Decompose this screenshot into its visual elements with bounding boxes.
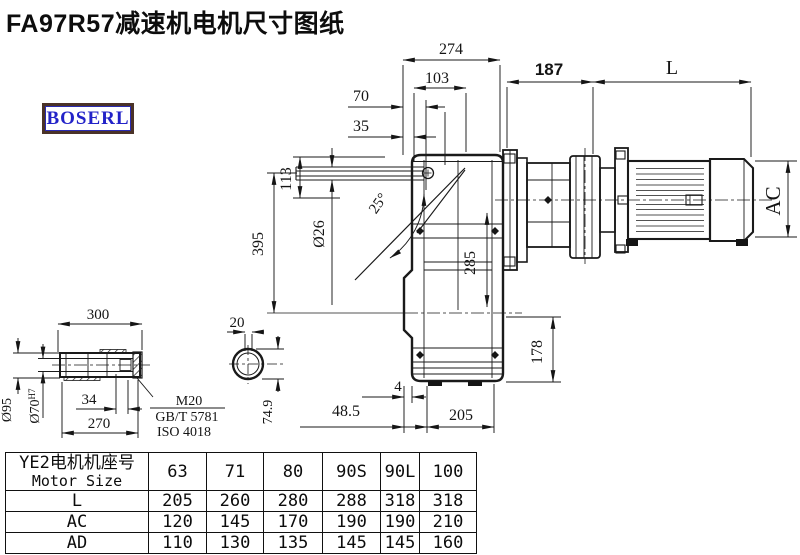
dim-178: 178 [529,340,546,364]
dim-113: 113 [278,167,295,190]
gearbox-housing [404,155,503,386]
cell-L-80: 280 [264,491,323,512]
cell-AD-100: 160 [420,533,477,554]
cell-L-90s: 288 [323,491,381,512]
table-row-AC: AC 120 145 170 190 190 210 [6,512,477,533]
cell-L-90l: 318 [381,491,420,512]
cell-L-71: 260 [207,491,264,512]
row-label-L: L [6,491,149,512]
row-label-AC: AC [6,512,149,533]
motor [600,148,753,253]
dim-70: 70 [353,88,369,105]
table-header-label: YE2电机机座号 Motor Size [6,453,149,491]
cell-AC-100: 210 [420,512,477,533]
dim-dia95: Ø95 [0,398,15,422]
dim-300: 300 [87,307,110,323]
dims-section-detail [227,332,284,392]
cell-AC-80: 170 [264,512,323,533]
dim-dia26: Ø26 [311,220,328,248]
motor-size-table-wrap: YE2电机机座号 Motor Size 63 71 80 90S 90L 100… [5,452,477,554]
col-header-63: 63 [149,453,207,491]
dim-205: 205 [449,407,473,424]
dim-285: 285 [462,251,479,275]
input-gear-unit [503,150,600,270]
cell-AD-90l: 145 [381,533,420,554]
header-en: Motor Size [6,473,148,490]
cell-AC-63: 120 [149,512,207,533]
main-view [267,60,797,433]
dim-dia70: Ø70 [28,399,43,423]
row-label-AD: AD [6,533,149,554]
table-row-AD: AD 110 130 135 145 145 160 [6,533,477,554]
note-iso-standard: ISO 4018 [157,425,211,440]
dim-34: 34 [82,392,98,408]
dim-20: 20 [230,315,245,331]
dim-h7-tolerance: H7 [27,388,37,399]
table-row-L: L 205 260 280 288 318 318 [6,491,477,512]
dim-74-9: 74.9 [261,400,276,425]
cell-AC-90l: 190 [381,512,420,533]
dim-103: 103 [425,70,449,87]
drawing-sheet: FA97R57减速机电机尺寸图纸 BOSERL [0,0,800,555]
cell-AD-80: 135 [264,533,323,554]
motor-size-table: YE2电机机座号 Motor Size 63 71 80 90S 90L 100… [5,452,477,554]
col-header-100: 100 [420,453,477,491]
col-header-90s: 90S [323,453,381,491]
dim-L: L [666,57,678,79]
col-header-71: 71 [207,453,264,491]
col-header-80: 80 [264,453,323,491]
centerlines [267,148,775,313]
dim-270: 270 [88,416,111,432]
dim-48-5: 48.5 [332,403,360,420]
cell-AC-71: 145 [207,512,264,533]
cell-AD-63: 110 [149,533,207,554]
dim-274: 274 [439,41,463,58]
dim-395: 395 [250,232,267,256]
cell-AD-90s: 145 [323,533,381,554]
dim-dia70h7: Ø70H7 [27,388,43,424]
dimension-labels: 274 103 70 35 187 L AC 395 113 Ø26 25° 2… [0,41,785,440]
shaft-section-detail [227,332,284,392]
header-cn: YE2电机机座号 [6,454,148,473]
dim-35: 35 [353,118,369,135]
dim-25deg: 25° [366,191,391,217]
dim-187: 187 [535,60,563,79]
cell-L-63: 205 [149,491,207,512]
note-m20: M20 [176,394,202,409]
cell-AC-90s: 190 [323,512,381,533]
cell-AD-71: 130 [207,533,264,554]
cell-L-100: 318 [420,491,477,512]
note-gb-standard: GB/T 5781 [155,410,218,425]
col-header-90l: 90L [381,453,420,491]
dim-AC: AC [761,186,785,215]
dim-4: 4 [394,379,402,395]
